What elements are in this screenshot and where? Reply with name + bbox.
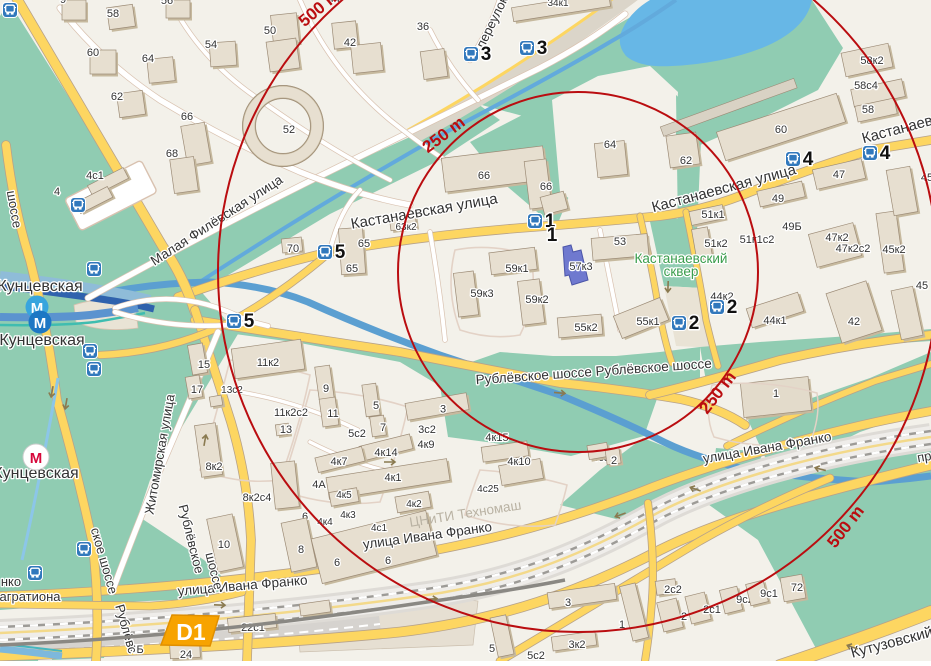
svg-text:60: 60 [87,47,99,59]
svg-text:47: 47 [833,169,845,181]
svg-text:1: 1 [773,388,779,400]
svg-text:60: 60 [775,124,787,136]
svg-text:1: 1 [547,225,558,246]
svg-text:4с1: 4с1 [371,523,388,534]
svg-text:пр: пр [916,448,931,465]
svg-text:64: 64 [142,53,154,65]
svg-text:5: 5 [244,311,255,332]
svg-text:11к2: 11к2 [257,357,279,369]
svg-text:62: 62 [111,91,123,103]
svg-text:3: 3 [440,404,446,416]
svg-text:М: М [34,315,47,332]
svg-text:45: 45 [916,280,928,292]
svg-text:3с2: 3с2 [418,424,436,436]
svg-text:42: 42 [848,316,860,328]
svg-text:2с2: 2с2 [664,584,682,596]
svg-text:62: 62 [680,155,692,167]
svg-text:17: 17 [191,384,203,396]
svg-text:4с25: 4с25 [477,484,499,495]
svg-text:13: 13 [280,424,292,436]
svg-text:9с1: 9с1 [760,588,778,600]
svg-text:7: 7 [380,422,386,434]
svg-text:4к5: 4к5 [336,490,352,501]
svg-text:50: 50 [264,25,276,37]
svg-text:58с4: 58с4 [854,80,878,92]
svg-text:4: 4 [54,186,60,198]
svg-text:4к9: 4к9 [417,439,434,451]
svg-text:55к1: 55к1 [636,316,659,328]
svg-text:47к2с2: 47к2с2 [836,243,871,255]
svg-text:8к2: 8к2 [205,461,222,473]
svg-text:52: 52 [283,124,295,136]
svg-text:70: 70 [287,243,299,255]
svg-text:58: 58 [107,8,119,20]
svg-text:3: 3 [481,44,492,65]
svg-text:D1: D1 [176,619,206,645]
svg-text:4А: 4А [312,479,326,491]
svg-text:42: 42 [344,37,356,49]
svg-text:59к1: 59к1 [505,263,528,275]
svg-text:68: 68 [166,148,178,160]
svg-text:3: 3 [565,597,571,609]
svg-text:8к2с4: 8к2с4 [243,492,272,504]
svg-text:сквер: сквер [664,264,699,279]
svg-text:57к3: 57к3 [569,261,592,273]
svg-text:4с1: 4с1 [86,170,104,182]
svg-text:59к2: 59к2 [525,294,548,306]
svg-text:8: 8 [298,544,304,556]
svg-text:11: 11 [327,408,338,420]
svg-text:5с2: 5с2 [527,650,545,661]
svg-text:11к2с2: 11к2с2 [274,407,308,419]
svg-text:4к2: 4к2 [406,499,422,510]
svg-text:Кунцевская: Кунцевская [0,278,83,295]
svg-text:5: 5 [335,242,346,263]
svg-text:2: 2 [611,455,617,467]
svg-text:4к14: 4к14 [374,447,397,459]
svg-text:4: 4 [880,143,891,164]
svg-text:44к1: 44к1 [763,315,786,327]
svg-text:10: 10 [218,539,230,551]
svg-text:66: 66 [181,111,193,123]
svg-text:15: 15 [198,359,210,371]
svg-text:2: 2 [727,297,738,318]
svg-text:4: 4 [803,149,814,170]
svg-text:59к3: 59к3 [470,288,493,300]
svg-text:66: 66 [478,170,490,182]
svg-text:66: 66 [540,181,552,193]
svg-text:56: 56 [161,0,173,7]
svg-text:агратиона: агратиона [0,589,61,604]
svg-text:58: 58 [862,104,874,116]
svg-text:9: 9 [323,383,329,395]
svg-text:54: 54 [205,39,217,51]
svg-text:49: 49 [772,193,784,205]
svg-text:6: 6 [334,557,340,569]
svg-text:65: 65 [346,263,358,275]
svg-text:51к2: 51к2 [704,238,727,250]
svg-text:3: 3 [537,38,548,59]
svg-text:4к10: 4к10 [507,456,530,468]
svg-text:51к1с2: 51к1с2 [740,234,775,246]
svg-text:51к1: 51к1 [701,209,724,221]
svg-text:24: 24 [180,649,192,661]
svg-text:55к2: 55к2 [574,322,597,334]
svg-text:34к1: 34к1 [547,0,568,9]
svg-text:65: 65 [358,238,370,250]
svg-text:49Б: 49Б [782,221,801,233]
svg-text:72: 72 [791,582,803,594]
svg-text:3к2: 3к2 [568,639,585,651]
svg-text:4к1: 4к1 [384,472,401,484]
svg-text:53: 53 [614,236,626,248]
svg-text:6: 6 [385,555,391,567]
svg-text:2: 2 [689,313,700,334]
svg-text:Кунцевская: Кунцевская [0,332,85,349]
svg-text:5с2: 5с2 [348,428,366,440]
svg-text:5: 5 [489,643,495,655]
svg-text:М: М [30,450,43,467]
svg-text:4к3: 4к3 [340,510,356,521]
svg-text:4к7: 4к7 [330,456,347,468]
svg-text:5: 5 [373,400,379,412]
svg-text:45к2: 45к2 [882,244,905,256]
svg-text:9: 9 [60,0,66,6]
svg-text:64: 64 [604,139,616,151]
svg-text:36: 36 [417,21,429,33]
svg-text:нко: нко [1,574,21,589]
